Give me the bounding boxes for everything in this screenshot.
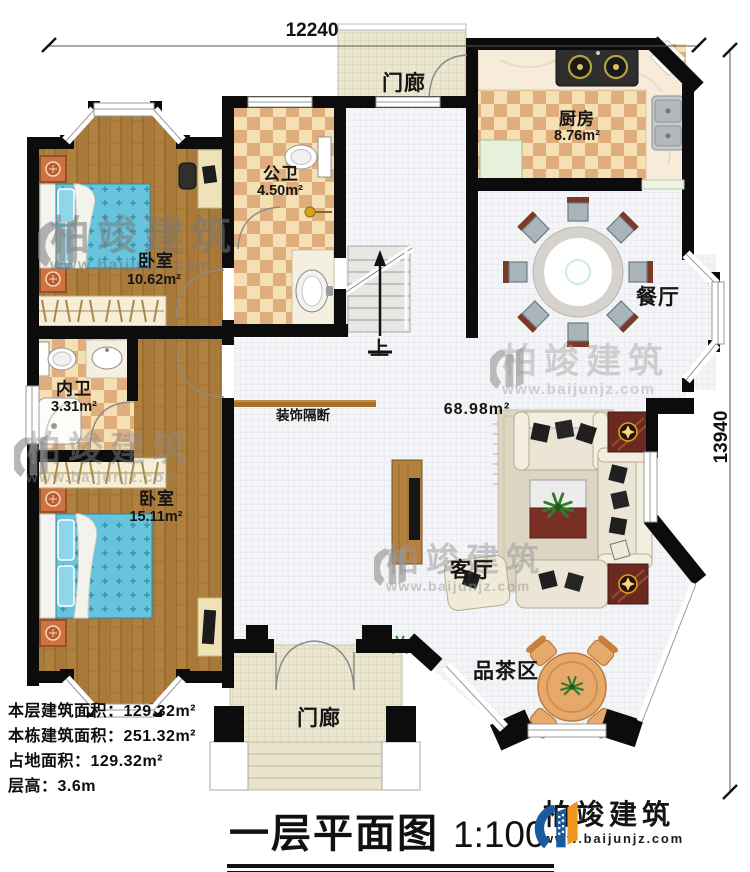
dining-table-icon [503, 197, 653, 347]
room-area-public-bath: 4.50m² [257, 183, 303, 199]
tv-cabinet-icon [198, 598, 222, 656]
room-label-living: 客厅 [450, 554, 494, 584]
area-info-block: 本层建筑面积：129.32m² 本栋建筑面积：251.32m² 占地面积：129… [8, 699, 196, 799]
floorplan-page: 12240 13940 门廊 厨房 8.76m² 公卫 4.50m² 卧室 10… [0, 0, 750, 872]
room-label-inner-bath: 内卫 [56, 375, 92, 400]
annotation-stairs-up: 上 [370, 334, 390, 361]
room-label-bedroom-bottom: 卧室 [139, 485, 175, 510]
side-table-icon [608, 412, 648, 452]
wardrobe-icon [36, 296, 166, 326]
room-label-bedroom-top: 卧室 [138, 247, 174, 272]
dimension-top: 12240 [286, 20, 339, 42]
fridge-icon [480, 140, 522, 180]
side-table-icon [608, 564, 648, 604]
room-area-kitchen: 8.76m² [554, 128, 600, 144]
wardrobe-icon [36, 458, 166, 488]
room-area-bedroom-bottom: 15.11m² [129, 509, 182, 525]
room-label-public-bath: 公卫 [263, 160, 299, 185]
info-line: 层高：3.6m [8, 774, 196, 799]
sink-counter-icon [86, 340, 128, 378]
drawing-title-text: 一层平面图 [229, 801, 439, 859]
drawing-title: 一层平面图 1:100 [227, 801, 554, 868]
washbasin-icon [292, 250, 334, 332]
room-label-dining: 餐厅 [636, 281, 680, 311]
coffee-table-icon [530, 480, 586, 538]
info-line: 占地面积：129.32m² [8, 749, 196, 774]
room-label-porch-bottom: 门廊 [297, 702, 341, 732]
brand-logo: 柏竣建筑 www.baijunjz.com [534, 799, 684, 846]
towel-ring-icon [305, 207, 315, 217]
dimension-right: 13940 [711, 411, 733, 464]
room-label-kitchen: 厨房 [559, 105, 595, 130]
porch-steps [210, 742, 420, 790]
room-area-inner-bath: 3.31m² [51, 399, 97, 415]
room-area-bedroom-top: 10.62m² [127, 272, 181, 288]
room-label-porch-top: 门廊 [382, 67, 426, 97]
drawing-scale: 1:100 [453, 814, 546, 856]
annotation-partition: 装饰隔断 [276, 404, 330, 424]
annotation-hall-area: 68.98m² [444, 401, 511, 419]
room-label-tea-area: 品茶区 [473, 655, 539, 685]
info-line: 本栋建筑面积：251.32m² [8, 724, 196, 749]
info-line: 本层建筑面积：129.32m² [8, 699, 196, 724]
stove-icon [556, 48, 638, 86]
sink-icon [652, 96, 684, 150]
